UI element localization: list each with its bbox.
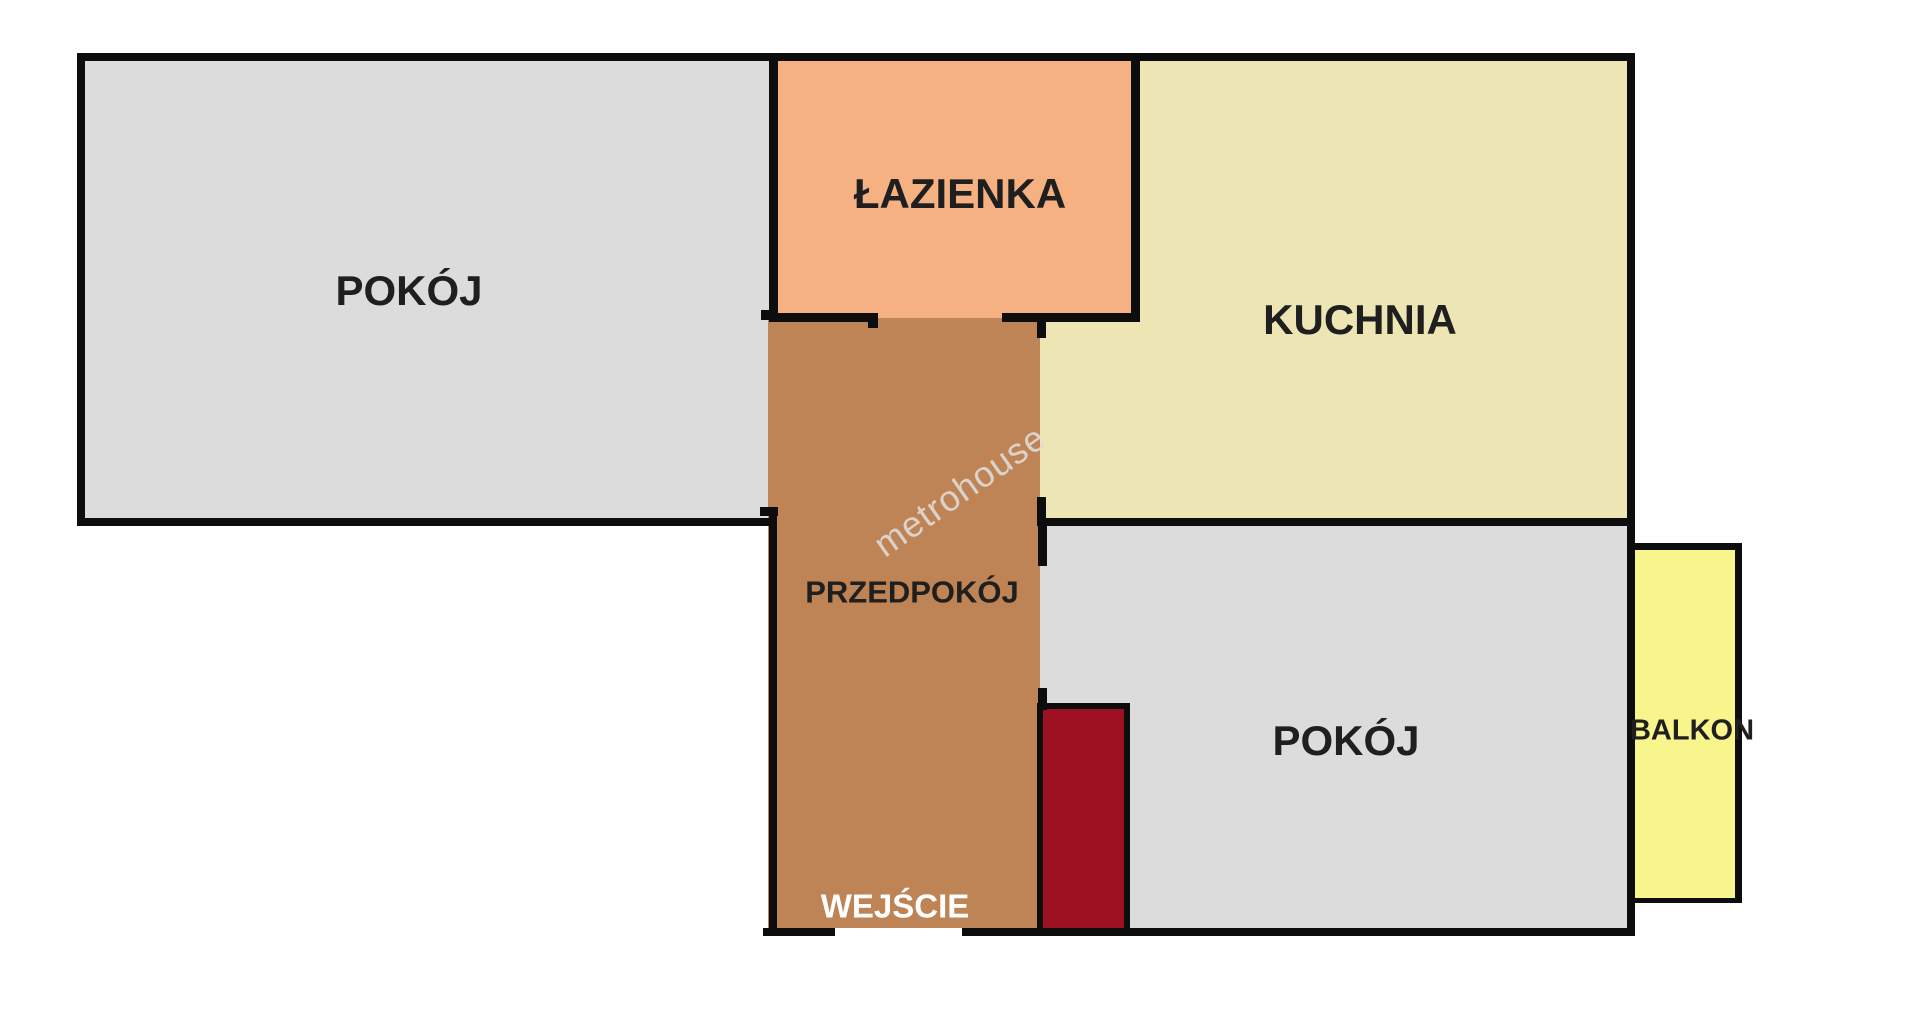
- wall-stub-kitchen-opening-top: [1037, 322, 1046, 338]
- room-kitchen-extension-area: [1040, 313, 1140, 526]
- room-hallway-area: [768, 318, 1040, 928]
- room-label-bathroom: ŁAZIENKA: [854, 173, 1066, 215]
- entrance-label: WEJŚCIE: [821, 890, 970, 923]
- wall-stub-above-wardrobe: [1038, 688, 1047, 710]
- room-kitchen-area: [1131, 53, 1635, 526]
- floor-plan: POKÓJ ŁAZIENKA KUCHNIA PRZEDPOKÓJ POKÓJ …: [0, 0, 1920, 1011]
- room-label-kitchen: KUCHNIA: [1263, 299, 1457, 341]
- room-label-balcony: BALKON: [1630, 717, 1754, 746]
- wall-left: [77, 53, 85, 526]
- wardrobe-block: [1037, 703, 1130, 936]
- room-label-living: POKÓJ: [335, 270, 482, 312]
- wall-living-bottom: [77, 518, 777, 526]
- wall-living-bathroom: [769, 53, 778, 318]
- wall-stub-bedroom-opening-top: [1038, 518, 1047, 566]
- wall-bathroom-bottom-left: [769, 313, 875, 322]
- room-label-hallway: PRZEDPOKÓJ: [805, 577, 1019, 608]
- wall-bottom-right-of-entrance: [962, 928, 1635, 936]
- wall-stub-kitchen-opening-bottom: [1037, 497, 1046, 518]
- wall-top: [77, 53, 1635, 61]
- room-label-bedroom: POKÓJ: [1272, 720, 1419, 762]
- wall-bathroom-bottom-right: [1002, 313, 1140, 322]
- wall-kitchen-bottom: [1037, 518, 1635, 526]
- wall-right: [1627, 53, 1635, 936]
- wall-bathroom-kitchen: [1131, 53, 1140, 322]
- wall-bathroom-door-tick: [868, 313, 878, 328]
- wall-hallway-left: [769, 507, 777, 936]
